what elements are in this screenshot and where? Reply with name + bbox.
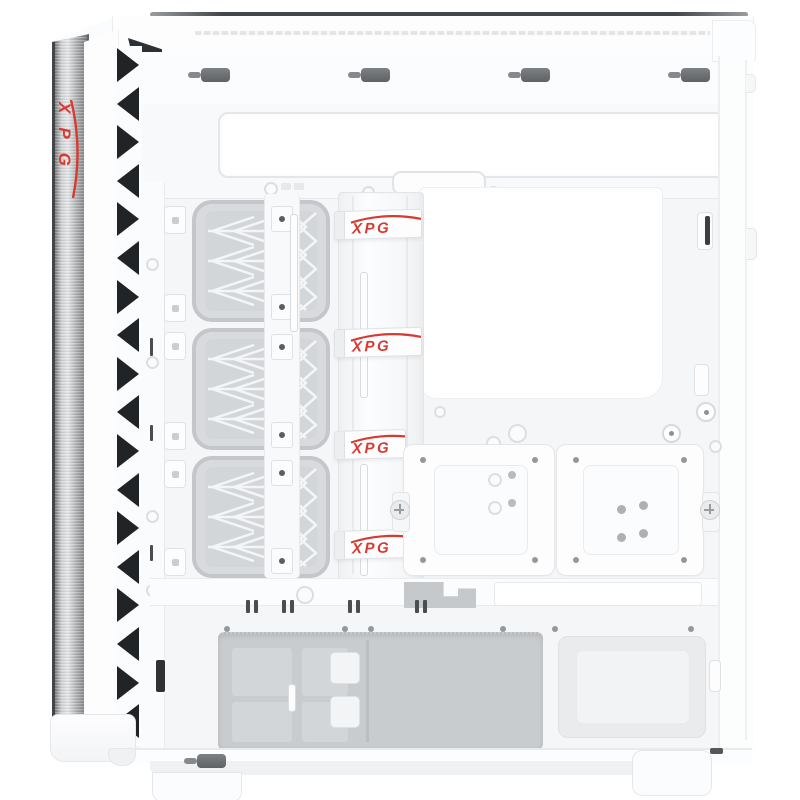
- rear-latch-top: [746, 74, 756, 93]
- mount-hole: [639, 529, 648, 538]
- rivet: [552, 626, 558, 632]
- mount-hole: [488, 473, 502, 487]
- zip-slot: [254, 600, 258, 613]
- zip-slot: [282, 600, 286, 613]
- rear-latch-mid: [746, 228, 757, 260]
- tray-screw: [420, 557, 426, 563]
- fan-clip: [164, 294, 186, 322]
- drive-tray-right: [556, 444, 704, 576]
- fan-clip: [164, 332, 186, 360]
- screw-hole: [709, 440, 722, 453]
- zip-slot: [415, 600, 419, 613]
- xpg-side-logo: XPG: [55, 92, 81, 204]
- drive-tray-left: [403, 444, 555, 576]
- bottom-tick: [710, 748, 723, 754]
- bar-groove: [352, 196, 354, 574]
- rail-tick: [150, 545, 153, 561]
- psu-vent-inner: [576, 650, 690, 724]
- rear-slot-mid: [694, 364, 709, 396]
- tray-screw: [681, 457, 687, 463]
- support-rod: [290, 214, 298, 332]
- hdd-bracket: [232, 702, 292, 742]
- stamp-mark: [294, 183, 304, 190]
- rear-slot-bottom: [709, 660, 721, 692]
- tray-screw: [420, 457, 426, 463]
- zip-slot: [423, 600, 427, 613]
- xpg-strap-logo: XPG: [345, 532, 406, 558]
- side-logo: XPG: [55, 92, 81, 204]
- psu-bay-recess: [218, 632, 543, 750]
- rail-clip: [271, 334, 293, 360]
- screw-hole: [434, 406, 446, 418]
- bay-clip: [330, 652, 360, 684]
- velcro-strap-2: XPG: [334, 327, 422, 358]
- tray-screw: [573, 457, 579, 463]
- top-mount-slot-3: [508, 68, 550, 82]
- fan-clip: [164, 422, 186, 450]
- bottom-mount-slot-1: [184, 754, 226, 768]
- xpg-strap-logo: XPG: [345, 330, 422, 356]
- strap-label: XPG: [351, 338, 391, 356]
- pc-case-product-photo: XPG XPG XPG XPG: [0, 0, 800, 800]
- grommet-hole: [296, 586, 314, 604]
- rail-clip: [271, 422, 293, 448]
- drive-tray-plate: [583, 465, 679, 555]
- vent-triangle-group: [117, 48, 139, 738]
- top-radiator-tray: [218, 112, 728, 178]
- motherboard-cutout: [420, 188, 662, 398]
- thumbscrew-right: [700, 500, 720, 520]
- top-panel: [112, 16, 754, 57]
- front-foot-pad: [108, 748, 136, 766]
- zip-slot: [356, 600, 360, 613]
- top-mesh-strip: [195, 31, 710, 35]
- front-vent-strip: [114, 46, 142, 746]
- strap-label: XPG: [351, 220, 391, 238]
- rail-hole: [146, 356, 159, 369]
- mount-hole: [617, 533, 626, 542]
- bay-divider: [366, 640, 369, 742]
- vent-triangles: [114, 46, 142, 746]
- rail-tick: [150, 425, 153, 441]
- mount-hole: [508, 471, 516, 479]
- tray-screw: [573, 557, 579, 563]
- rear-screw-hole: [696, 402, 716, 422]
- rear-foot: [632, 750, 712, 796]
- top-mount-slot-1: [188, 68, 230, 82]
- fan-clip: [164, 206, 186, 234]
- mount-hole: [488, 501, 502, 515]
- fan-clip: [164, 460, 186, 488]
- strap-label: XPG: [351, 539, 391, 557]
- front-rail-slot: [156, 660, 165, 692]
- xpg-strap-logo: XPG: [345, 212, 422, 238]
- mount-hole: [617, 505, 626, 514]
- velcro-strap-4: XPG: [334, 529, 406, 560]
- front-fan-grill-1: [192, 200, 330, 322]
- standoff-hole: [508, 424, 527, 443]
- zip-slot: [348, 600, 352, 613]
- rail-tick: [150, 338, 153, 356]
- front-fan-grill-3: [192, 456, 330, 578]
- top-mount-slot-2: [348, 68, 390, 82]
- rail-hole: [146, 258, 159, 271]
- bay-clip: [330, 696, 360, 728]
- rear-slot-dark: [705, 216, 710, 245]
- velcro-strap-1: XPG: [334, 209, 422, 240]
- tray-screw: [532, 457, 538, 463]
- rail-clip: [271, 460, 293, 486]
- top-mount-slot-4: [668, 68, 710, 82]
- zip-slot: [290, 600, 294, 613]
- rail-clip: [271, 548, 293, 574]
- bay-rod: [288, 684, 296, 712]
- zip-slot: [246, 600, 250, 613]
- tray-screw: [532, 557, 538, 563]
- rear-seam: [745, 60, 747, 740]
- strap-label: XPG: [351, 439, 391, 457]
- mount-hole: [639, 501, 648, 510]
- velcro-strap-3: XPG: [334, 429, 406, 460]
- stamp-mark: [281, 183, 291, 190]
- tray-screw: [681, 557, 687, 563]
- rail-hole: [146, 510, 159, 523]
- thumbscrew-left: [390, 500, 410, 520]
- front-fan-grill-2: [192, 328, 330, 450]
- psu-shroud-cutout: [494, 582, 702, 606]
- front-bottom-foot: [152, 772, 242, 800]
- rear-slot-top: [697, 212, 713, 250]
- rear-frame: [718, 56, 754, 748]
- xpg-strap-logo: XPG: [345, 432, 406, 458]
- standoff-hole: [662, 424, 681, 443]
- hdd-bracket: [232, 648, 292, 696]
- fan-clip: [164, 548, 186, 576]
- mount-hole: [508, 499, 516, 507]
- side-logo-label: XPG: [55, 101, 74, 180]
- rivet: [688, 626, 694, 632]
